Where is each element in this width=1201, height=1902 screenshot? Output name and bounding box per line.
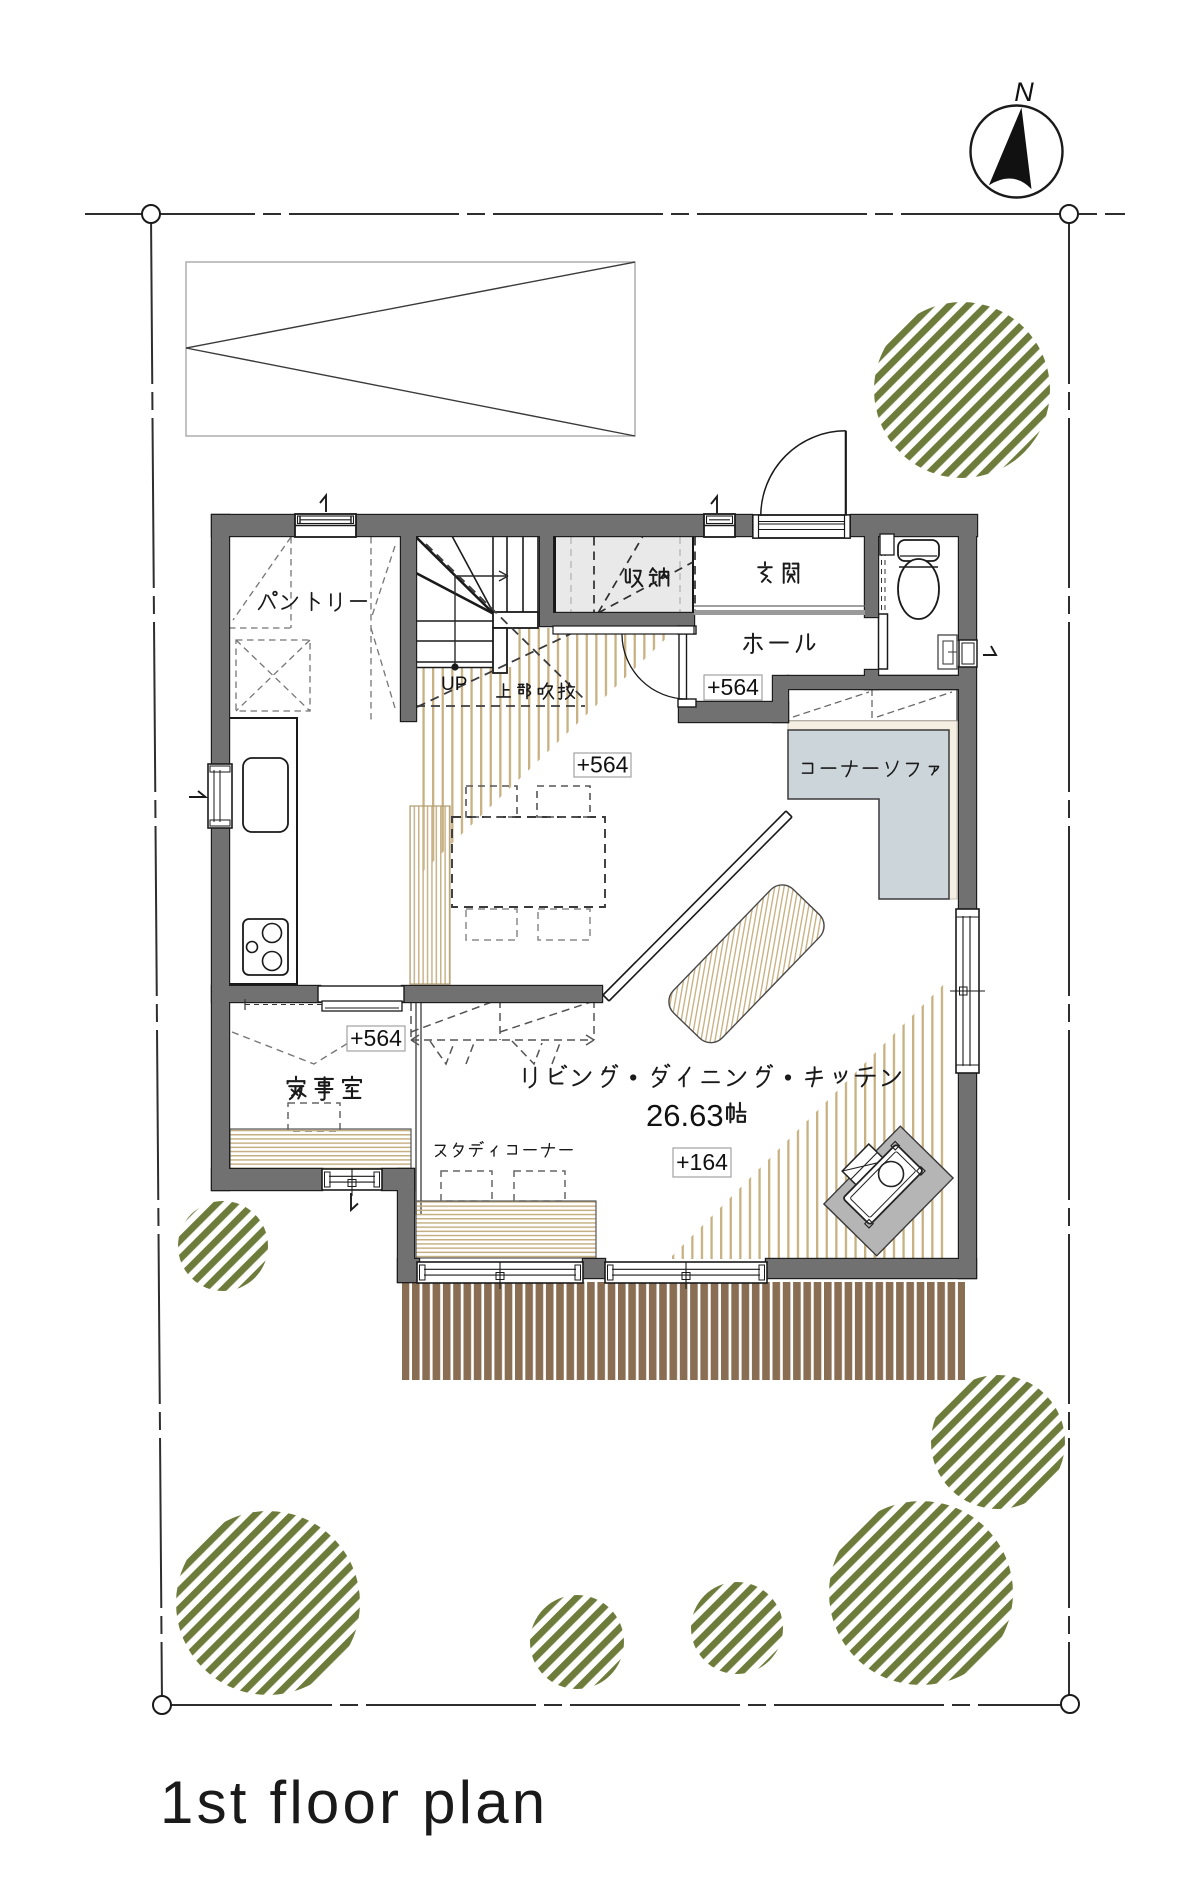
svg-text:+564: +564 — [577, 752, 629, 778]
svg-text:1st floor plan: 1st floor plan — [160, 1769, 548, 1836]
svg-text:N: N — [1014, 77, 1034, 107]
svg-text:+564: +564 — [350, 1025, 402, 1051]
svg-text:+164: +164 — [676, 1149, 728, 1175]
svg-text:+564: +564 — [707, 674, 759, 700]
svg-text:26.63: 26.63 — [646, 1098, 724, 1133]
svg-text:UP: UP — [441, 674, 467, 695]
